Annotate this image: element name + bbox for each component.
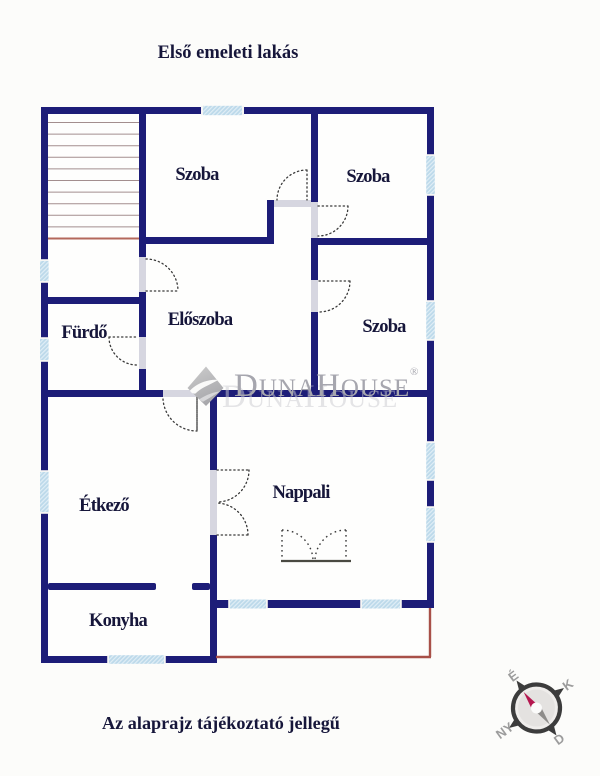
svg-text:Nappali: Nappali <box>272 483 330 503</box>
svg-text:Szoba: Szoba <box>175 165 219 185</box>
svg-text:Az alaprajz tájékoztató jelleg: Az alaprajz tájékoztató jellegű <box>102 713 340 733</box>
svg-text:®: ® <box>410 366 418 378</box>
svg-text:Fürdő: Fürdő <box>61 323 107 343</box>
svg-text:Első emeleti lakás: Első emeleti lakás <box>158 43 299 63</box>
svg-text:Szoba: Szoba <box>362 317 406 337</box>
svg-text:Étkező: Étkező <box>79 494 129 516</box>
svg-text:Előszoba: Előszoba <box>168 310 233 330</box>
svg-text:Szoba: Szoba <box>346 167 390 187</box>
svg-text:Konyha: Konyha <box>89 611 147 631</box>
